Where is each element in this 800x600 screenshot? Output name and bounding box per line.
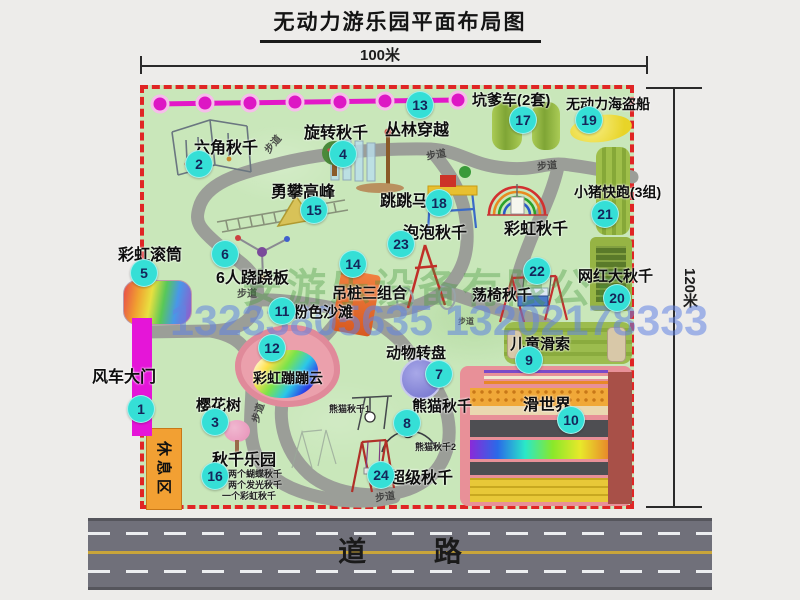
label-jungle-crossing: 丛林穿越 bbox=[385, 116, 449, 140]
slide-stripe-dark2 bbox=[470, 462, 608, 475]
dim-right-tick-top bbox=[646, 87, 702, 89]
badge-23: 23 bbox=[387, 230, 415, 258]
kids-zipline-post-right bbox=[607, 327, 626, 362]
badge-21: 21 bbox=[591, 200, 619, 228]
badge-22: 22 bbox=[523, 257, 551, 285]
footpath-label-3: 步道 bbox=[536, 156, 557, 173]
road: 道 路 bbox=[88, 518, 712, 590]
badge-11: 11 bbox=[268, 297, 296, 325]
label-piggy-run: 小猪快跑(3组) bbox=[574, 182, 661, 202]
label-pink-beach: 粉色沙滩 bbox=[293, 301, 353, 322]
dim-top-label: 100米 bbox=[360, 44, 400, 65]
badge-7: 7 bbox=[425, 360, 453, 388]
label-super-swing: 超级秋千 bbox=[389, 464, 453, 488]
label-rotating-swing: 旋转秋千 bbox=[304, 119, 368, 143]
label-hanging-post-combo: 吊桩三组合 bbox=[332, 282, 407, 303]
badge-5: 5 bbox=[130, 259, 158, 287]
panda-swing-1-label: 熊猫秋千1 bbox=[329, 402, 370, 415]
badge-20: 20 bbox=[603, 284, 631, 312]
badge-12: 12 bbox=[258, 334, 286, 362]
dim-right-line bbox=[673, 88, 675, 508]
rest-area-label: 休息区 bbox=[154, 440, 175, 497]
label-peak-climbing: 勇攀高峰 bbox=[271, 178, 335, 202]
dim-top-line bbox=[140, 65, 648, 67]
dim-right-tick-bottom bbox=[646, 506, 702, 508]
badge-14: 14 bbox=[339, 250, 367, 278]
label-windmill-gate: 风车大门 bbox=[92, 363, 156, 387]
panda-swing-2-label: 熊猫秋千2 bbox=[415, 440, 456, 453]
badge-19: 19 bbox=[575, 106, 603, 134]
label-rainbow-bounce-cloud: 彩虹蹦蹦云 bbox=[253, 368, 323, 388]
badge-9: 9 bbox=[515, 346, 543, 374]
road-label: 道 路 bbox=[88, 521, 712, 587]
badge-18: 18 bbox=[425, 189, 453, 217]
badge-24: 24 bbox=[367, 461, 395, 489]
slide-world-tower bbox=[608, 372, 632, 504]
label-rocking-chair-swing: 荡椅秋千 bbox=[472, 284, 532, 305]
page-title: 无动力游乐园平面布局图 bbox=[260, 6, 541, 43]
badge-6: 6 bbox=[211, 240, 239, 268]
rest-area: 休息区 bbox=[146, 428, 182, 510]
badge-15: 15 bbox=[300, 196, 328, 224]
badge-1: 1 bbox=[127, 395, 155, 423]
label-rainbow-swing: 彩虹秋千 bbox=[504, 215, 568, 239]
swing-park-note-3: 一个彩虹秋千 bbox=[222, 489, 276, 502]
badge-13: 13 bbox=[406, 91, 434, 119]
badge-10: 10 bbox=[557, 406, 585, 434]
label-jumping-horse: 跳跳马 bbox=[380, 187, 428, 211]
badge-4: 4 bbox=[329, 140, 357, 168]
badge-16: 16 bbox=[201, 462, 229, 490]
label-panda-swing: 熊猫秋千 bbox=[412, 395, 472, 416]
page-title-wrap: 无动力游乐园平面布局图 bbox=[0, 6, 800, 43]
label-kengdie-car: 坑爹车(2套) bbox=[472, 89, 550, 110]
badge-3: 3 bbox=[201, 408, 229, 436]
badge-8: 8 bbox=[393, 409, 421, 437]
label-big-swing: 网红大秋千 bbox=[578, 265, 653, 286]
dim-right-label: 120米 bbox=[679, 268, 700, 308]
slide-stripe-yellow bbox=[470, 478, 608, 502]
dim-top-tick-right bbox=[646, 56, 648, 74]
slide-stripe-dark1 bbox=[470, 420, 608, 437]
badge-2: 2 bbox=[185, 150, 213, 178]
badge-17: 17 bbox=[509, 106, 537, 134]
slide-stripe-rainbow bbox=[470, 440, 608, 459]
page: { "title": "无动力游乐园平面布局图", "dim_top": "10… bbox=[0, 0, 800, 600]
footpath-label-6: 步道 bbox=[374, 487, 396, 505]
zipline-cables bbox=[484, 370, 608, 385]
footpath-label-7: 步道 bbox=[458, 316, 474, 327]
dim-top-tick-left bbox=[140, 56, 142, 74]
